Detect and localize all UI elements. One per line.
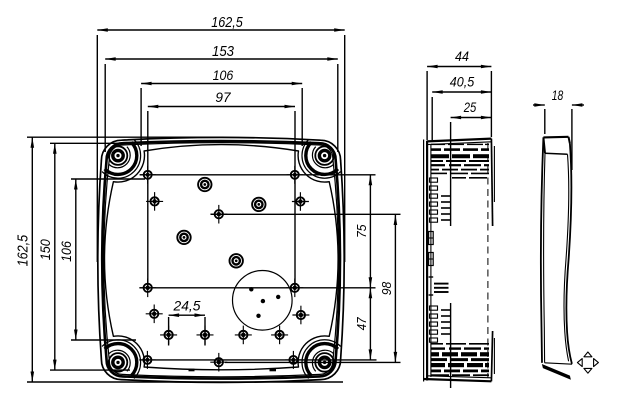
svg-text:75: 75	[354, 224, 369, 238]
svg-text:153: 153	[212, 44, 234, 60]
svg-text:106: 106	[213, 68, 234, 83]
svg-text:98: 98	[379, 281, 394, 295]
svg-text:162,5: 162,5	[211, 15, 243, 31]
svg-text:25: 25	[463, 100, 477, 115]
svg-text:106: 106	[58, 241, 74, 262]
svg-text:150: 150	[37, 239, 53, 260]
svg-text:44: 44	[455, 49, 469, 64]
svg-text:97: 97	[215, 90, 231, 105]
svg-text:18: 18	[552, 88, 564, 103]
svg-text:24,5: 24,5	[172, 298, 201, 313]
svg-text:40,5: 40,5	[450, 75, 475, 90]
svg-text:162,5: 162,5	[16, 234, 32, 266]
svg-text:47: 47	[354, 317, 369, 331]
